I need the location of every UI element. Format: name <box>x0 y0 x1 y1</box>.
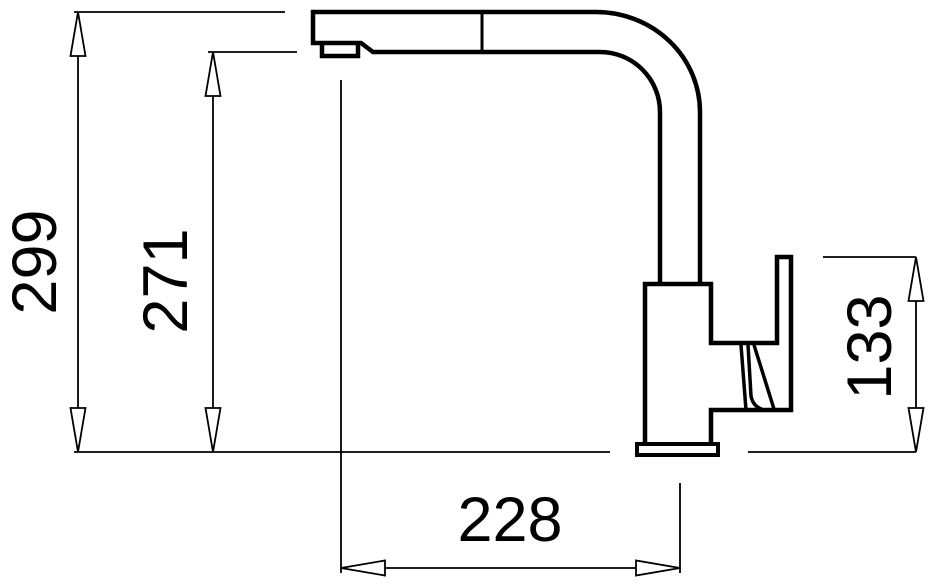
arrowhead-up <box>71 12 86 56</box>
body-left-and-top-edge <box>645 284 713 446</box>
dimension-label-spout-reach: 228 <box>457 485 562 555</box>
dimension-handle-top-height: 133 <box>823 257 924 452</box>
faucet-technical-drawing-canvas: 299 271 133 228 <box>0 0 929 585</box>
arrowhead-down <box>71 408 86 452</box>
faucet-dimension-drawing: 299 271 133 228 <box>0 0 929 585</box>
base-plate <box>637 444 718 455</box>
arrowhead-up <box>206 52 221 96</box>
arrowhead-left <box>341 561 385 576</box>
arrowhead-down <box>206 408 221 452</box>
dimension-label-total-height: 299 <box>0 209 70 314</box>
arrowhead-down <box>909 408 924 452</box>
spout-underside-and-neck-inner-edge <box>311 43 660 284</box>
dimension-label-spout-underside-height: 271 <box>131 228 201 333</box>
dimension-spout-underside-height: 271 <box>131 52 297 452</box>
arrowhead-up <box>909 257 924 301</box>
handle-lever-diagonal-edge <box>754 345 774 409</box>
body-right-profile-and-handle-lever <box>711 257 791 446</box>
arrowhead-right <box>636 561 680 576</box>
handle-pivot-front-line <box>741 345 746 410</box>
handle-joint-detail <box>741 345 774 410</box>
dimension-spout-reach: 228 <box>341 80 680 576</box>
dimension-label-handle-top-height: 133 <box>835 294 905 399</box>
faucet-outline <box>311 10 791 455</box>
